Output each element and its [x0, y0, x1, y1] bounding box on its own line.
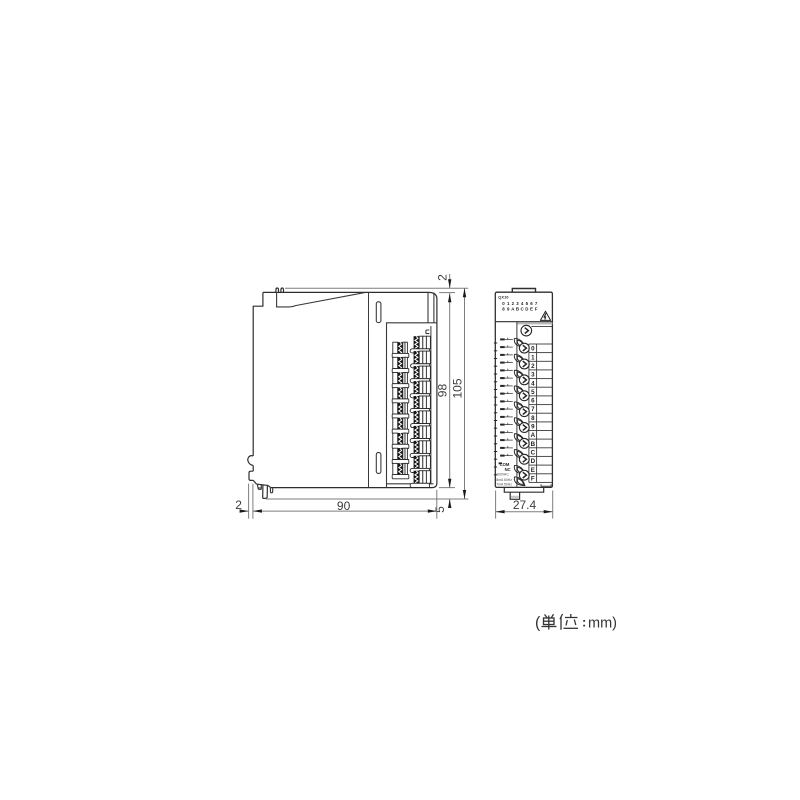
svg-text:E: E: [530, 307, 533, 312]
svg-text:2: 2: [235, 498, 242, 512]
svg-text:98: 98: [435, 384, 449, 398]
svg-text:6: 6: [531, 398, 535, 405]
svg-text:A: A: [531, 432, 536, 439]
svg-text:7: 7: [531, 406, 535, 413]
svg-text:5: 5: [433, 506, 447, 513]
svg-text:E: E: [531, 467, 535, 474]
svg-text:mm): mm): [588, 616, 617, 632]
svg-text:1: 1: [531, 354, 535, 361]
svg-text:QX10: QX10: [498, 296, 509, 300]
svg-text:3: 3: [531, 372, 535, 379]
svg-text:100VAC: 100VAC: [496, 473, 509, 477]
svg-text:0: 0: [531, 346, 535, 353]
svg-text:90: 90: [337, 499, 351, 513]
svg-text:NC: NC: [505, 467, 511, 472]
svg-text::: :: [582, 615, 586, 630]
svg-text:2: 2: [436, 274, 450, 281]
svg-text:5: 5: [531, 389, 535, 396]
svg-text:2: 2: [531, 363, 535, 370]
svg-text:8: 8: [531, 415, 535, 422]
svg-text:D: D: [531, 458, 536, 465]
svg-text:105: 105: [450, 378, 464, 398]
svg-text:4: 4: [531, 380, 535, 387]
svg-text:C: C: [531, 450, 536, 457]
svg-text:9: 9: [531, 424, 535, 431]
svg-text:B: B: [531, 441, 536, 448]
svg-text:F: F: [531, 475, 535, 482]
svg-text:7mA 50Hz: 7mA 50Hz: [496, 482, 512, 486]
svg-text:F: F: [535, 307, 538, 312]
svg-text:D: D: [525, 307, 528, 312]
svg-text:27.4: 27.4: [513, 498, 537, 512]
svg-text:(: (: [535, 615, 541, 632]
svg-text:8mA 60Hz: 8mA 60Hz: [496, 478, 512, 482]
svg-text:B: B: [516, 307, 519, 312]
